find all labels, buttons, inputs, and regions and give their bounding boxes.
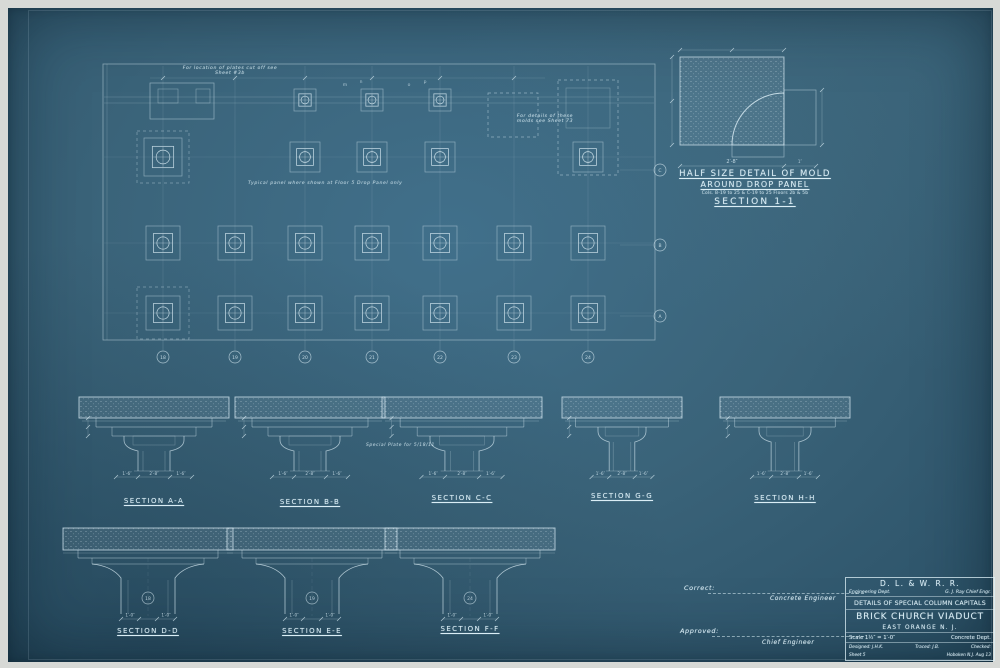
- detail-heading-subnote: Cols. B-19 to 25 & C-19 to 25 Floors 2b …: [665, 191, 845, 196]
- svg-text:1′-6″: 1′-6″: [332, 471, 342, 476]
- plan-note-typical-panel: Typical panel where shown at Floor 5 Dro…: [248, 181, 428, 186]
- detail-heading-section-ref: SECTION 1-1: [665, 197, 845, 207]
- title-block: D. L. & W. R. R. Engineering Dept. G. J.…: [845, 577, 995, 661]
- detail-heading-line1: HALF SIZE DETAIL OF MOLD: [665, 169, 845, 179]
- svg-text:2′-8″: 2′-8″: [457, 471, 467, 476]
- correct-label: Correct:: [684, 584, 715, 592]
- svg-text:19: 19: [309, 596, 315, 602]
- svg-text:1′-6″: 1′-6″: [429, 471, 439, 476]
- title-block-office-date: Hoboken N.J. Aug 13: [947, 653, 991, 658]
- approved-label: Approved:: [680, 627, 719, 635]
- svg-text:23: 23: [511, 355, 517, 361]
- svg-text:21: 21: [369, 355, 375, 361]
- blueprint-line-work: 18192021222324CBAmnop2′-8″1″1′-6″2′-8″1′…: [0, 0, 1000, 668]
- plan-note-plates: For location of plates cut off see Sheet…: [165, 66, 295, 76]
- section-label-e-e: SECTION E-E: [282, 627, 342, 635]
- plan-note-molds: For details of these molds see Sheet 73: [503, 114, 587, 124]
- section-label-c-c: SECTION C-C: [432, 494, 493, 502]
- svg-text:18: 18: [145, 596, 151, 602]
- svg-text:1′-0″: 1′-0″: [161, 613, 171, 618]
- svg-text:1′-6″: 1′-6″: [176, 471, 186, 476]
- title-block-scale: Scale 1½″ = 1′-0″: [849, 635, 895, 641]
- svg-text:1′-6″: 1′-6″: [486, 471, 496, 476]
- svg-text:2′-8″: 2′-8″: [726, 159, 737, 165]
- svg-text:20: 20: [302, 355, 308, 361]
- approved-signature-line: [712, 635, 864, 637]
- svg-text:2′-8″: 2′-8″: [780, 471, 790, 476]
- svg-text:24: 24: [467, 596, 473, 602]
- svg-text:1′-6″: 1′-6″: [596, 471, 606, 476]
- title-block-chief-engineer: G. J. Ray Chief Engr.: [945, 590, 991, 595]
- approved-role: Chief Engineer: [762, 639, 815, 646]
- title-block-designed: Designed: J.H.K.: [849, 645, 883, 650]
- blueprint-scan: 18192021222324CBAmnop2′-8″1″1′-6″2′-8″1′…: [0, 0, 1000, 668]
- title-block-location: EAST ORANGE N. J.: [846, 624, 994, 632]
- svg-text:1′-0″: 1′-0″: [325, 613, 335, 618]
- title-block-drawing-title: DETAILS OF SPECIAL COLUMN CAPITALS: [846, 597, 994, 609]
- svg-text:1′-0″: 1′-0″: [447, 613, 457, 618]
- svg-text:2′-8″: 2′-8″: [149, 471, 159, 476]
- svg-text:1″: 1″: [798, 159, 803, 164]
- svg-text:1′-0″: 1′-0″: [125, 613, 135, 618]
- svg-text:24: 24: [585, 355, 591, 361]
- section-label-g-g: SECTION G-G: [591, 492, 653, 500]
- correct-signature-line: [708, 592, 864, 594]
- detail-heading-line2: AROUND DROP PANEL: [665, 180, 845, 189]
- section-label-d-d: SECTION D-D: [117, 627, 179, 635]
- svg-text:1′-6″: 1′-6″: [122, 471, 132, 476]
- section-label-b-b: SECTION B-B: [280, 498, 340, 506]
- svg-text:1′-0″: 1′-0″: [289, 613, 299, 618]
- section-label-f-f: SECTION F-F: [440, 625, 499, 633]
- title-block-project-name: BRICK CHURCH VIADUCT: [846, 610, 994, 624]
- svg-text:n: n: [360, 80, 363, 85]
- svg-text:22: 22: [437, 355, 443, 361]
- svg-text:m: m: [343, 83, 347, 88]
- title-block-dept: Engineering Dept.: [849, 590, 891, 595]
- title-block-concrete-dept: Concrete Dept.: [951, 635, 991, 641]
- svg-text:1′-6″: 1′-6″: [757, 471, 767, 476]
- plan-note-special-plate: Special Plate for 5/18/11: [366, 443, 456, 448]
- svg-text:1′-6″: 1′-6″: [804, 471, 814, 476]
- svg-text:1′-0″: 1′-0″: [483, 613, 493, 618]
- svg-text:18: 18: [160, 355, 166, 361]
- svg-text:C: C: [658, 168, 661, 174]
- svg-text:o: o: [408, 83, 411, 88]
- svg-text:2′-8″: 2′-8″: [617, 471, 627, 476]
- title-block-traced: Traced: J.B.: [915, 645, 939, 650]
- title-block-checked: Checked:: [971, 645, 991, 650]
- section-label-a-a: SECTION A-A: [124, 497, 184, 505]
- title-block-sheet-number: Sheet 5: [849, 653, 866, 658]
- svg-text:p: p: [424, 80, 427, 85]
- title-block-railroad: D. L. & W. R. R.: [846, 578, 994, 589]
- svg-text:2′-8″: 2′-8″: [305, 471, 315, 476]
- svg-text:1′-6″: 1′-6″: [278, 471, 288, 476]
- svg-text:19: 19: [232, 355, 238, 361]
- svg-text:A: A: [658, 314, 662, 320]
- section-label-h-h: SECTION H-H: [754, 494, 816, 502]
- svg-text:B: B: [658, 243, 661, 249]
- correct-role: Concrete Engineer: [770, 595, 836, 602]
- svg-text:1′-6″: 1′-6″: [639, 471, 649, 476]
